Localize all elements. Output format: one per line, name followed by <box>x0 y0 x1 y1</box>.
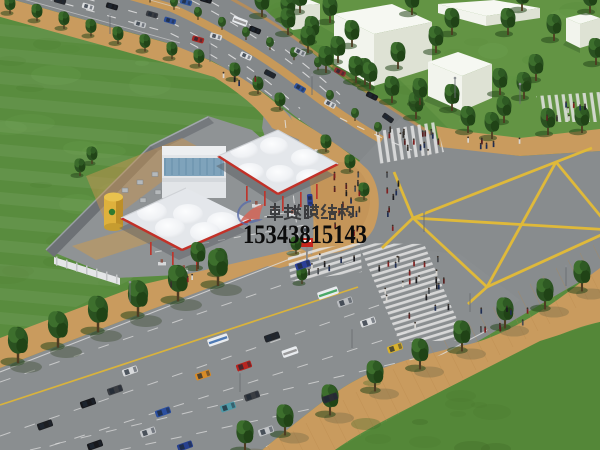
svg-text:15343815143: 15343815143 <box>243 220 367 249</box>
